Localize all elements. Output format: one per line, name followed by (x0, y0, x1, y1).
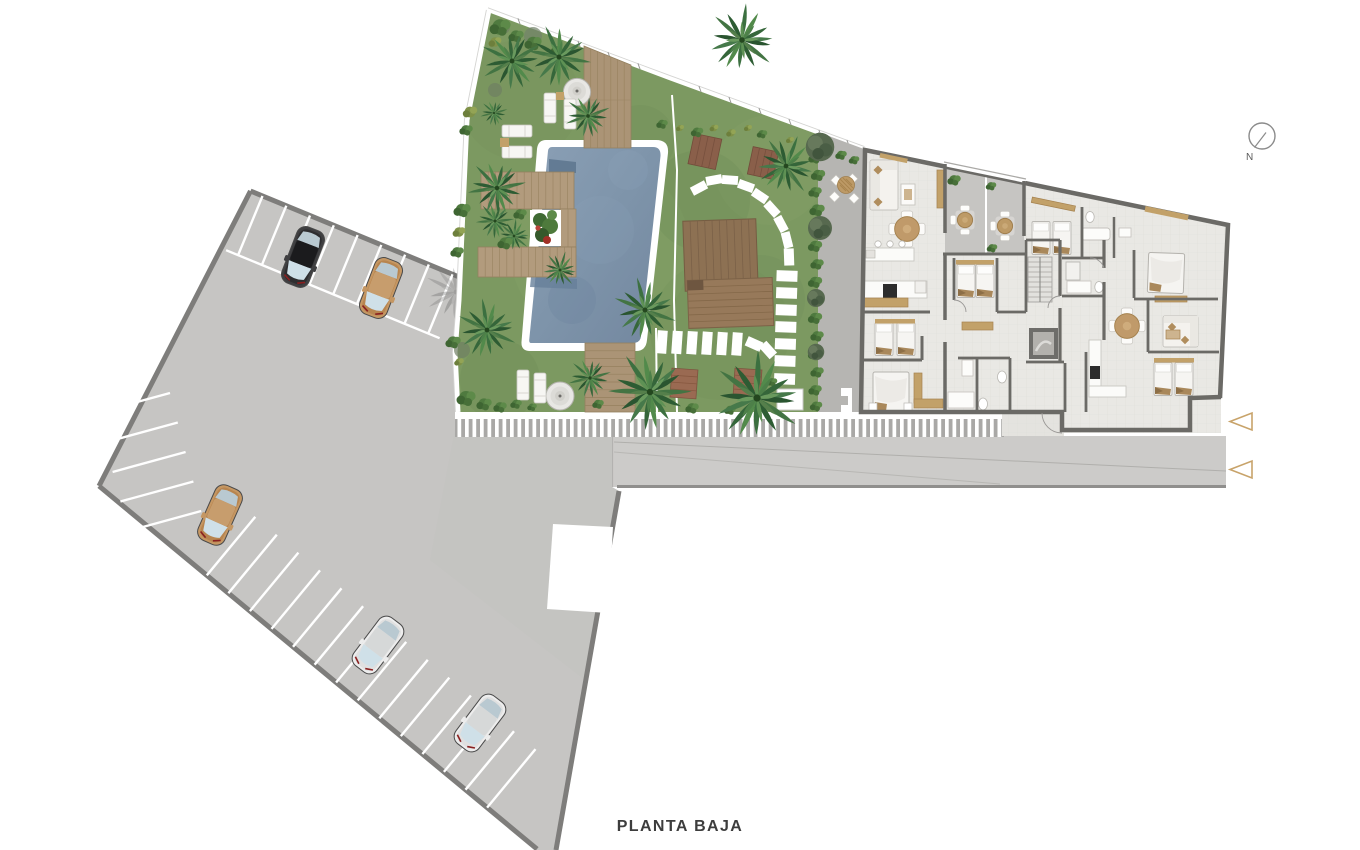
svg-text:PLANTA BAJA: PLANTA BAJA (617, 818, 744, 835)
svg-text:N: N (1246, 152, 1253, 163)
